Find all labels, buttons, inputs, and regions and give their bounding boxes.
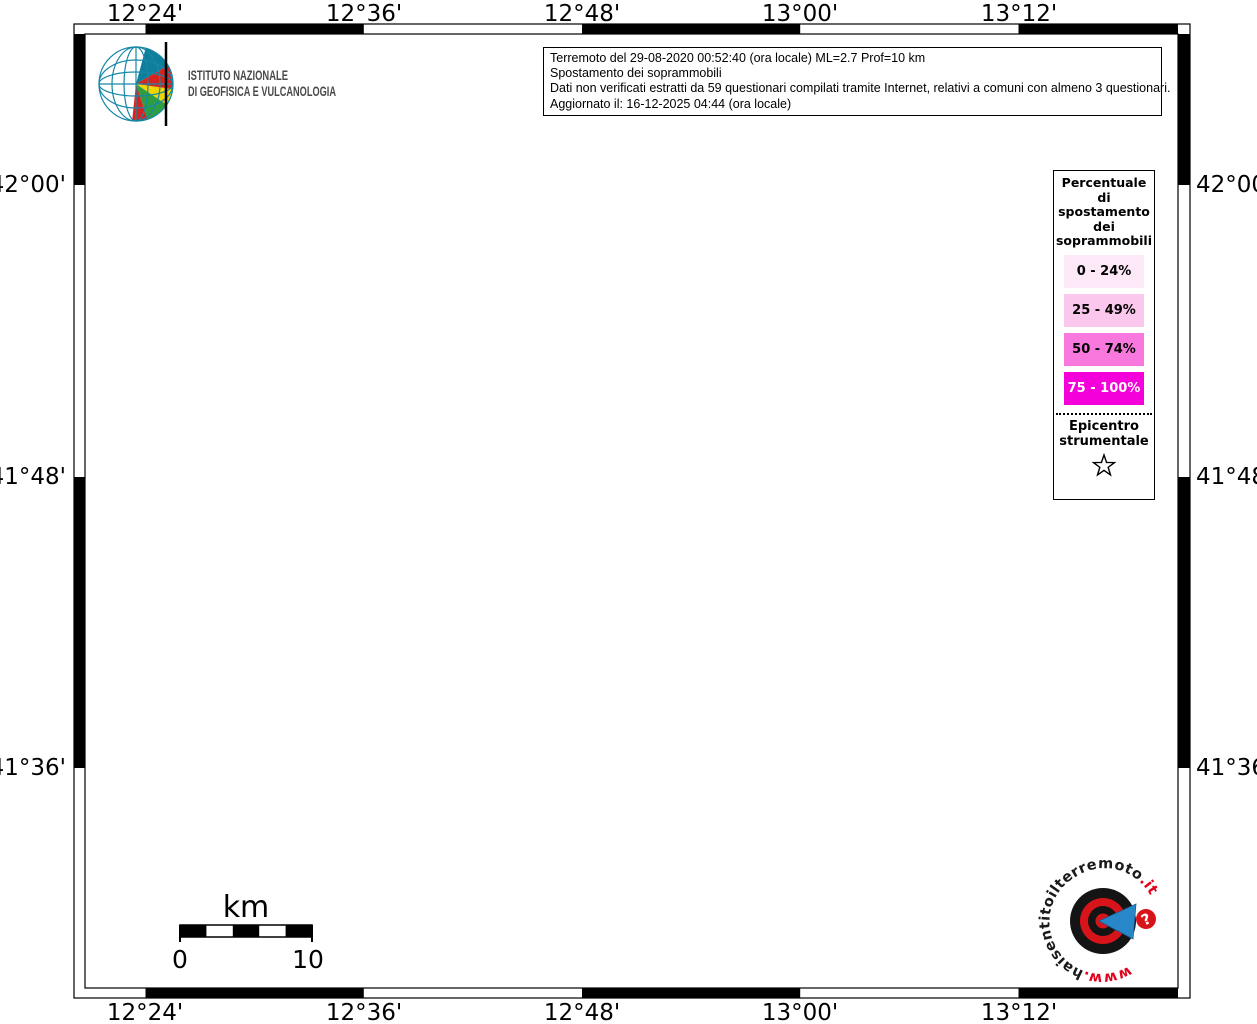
legend-star-icon: [1091, 453, 1117, 479]
legend-swatch-0-24: 0 - 24%: [1064, 255, 1144, 288]
lat-label-left-1: 41°48': [0, 464, 66, 490]
lon-label-bottom-4: 13°12': [981, 1000, 1057, 1024]
event-title-line: Terremoto del 29-08-2020 00:52:40 (ora l…: [550, 51, 1155, 66]
lat-label-left-0: 42°00': [0, 172, 66, 198]
lat-label-right-0: 42°00': [1196, 172, 1257, 198]
ingv-logo-line2: DI GEOFISICA E VULCANOLOGIA: [188, 84, 336, 99]
scalebar-unit: km: [223, 890, 270, 925]
legend-epicenter-label: Epicentro strumentale: [1054, 419, 1154, 450]
lon-label-top-3: 13°00': [762, 1, 838, 27]
event-source-line: Dati non verificati estratti da 59 quest…: [550, 81, 1155, 96]
lat-label-left-2: 41°36': [0, 755, 66, 781]
legend-swatch-25-49: 25 - 49%: [1064, 294, 1144, 327]
legend-swatch-75-100: 75 - 100%: [1064, 372, 1144, 405]
scalebar-end: 10: [292, 945, 324, 974]
lon-label-top-0: 12°24': [107, 1, 183, 27]
lon-label-bottom-1: 12°36': [326, 1000, 402, 1024]
lon-label-top-4: 13°12': [981, 1, 1057, 27]
event-info-box: Terremoto del 29-08-2020 00:52:40 (ora l…: [543, 47, 1162, 116]
scalebar-start: 0: [172, 945, 188, 974]
globe-grid-icon: [99, 47, 173, 121]
lat-label-right-2: 41°36': [1196, 755, 1257, 781]
legend-swatch-50-74: 50 - 74%: [1064, 333, 1144, 366]
legend-separator: [1056, 413, 1152, 415]
lon-label-bottom-0: 12°24': [107, 1000, 183, 1024]
event-effect-line: Spostamento dei soprammobili: [550, 66, 1155, 81]
lon-label-top-2: 12°48': [544, 1, 620, 27]
lon-label-top-1: 12°36': [326, 1, 402, 27]
legend-title: Percentuale di spostamento dei soprammob…: [1054, 176, 1154, 249]
lon-label-bottom-3: 13°00': [762, 1000, 838, 1024]
legend: Percentuale di spostamento dei soprammob…: [1053, 170, 1155, 500]
lat-label-right-1: 41°48': [1196, 464, 1257, 490]
map-canvas: km 0 10 ISTITUTO NAZIONALE DI GEOFISICA …: [0, 0, 1257, 1024]
lon-label-bottom-2: 12°48': [544, 1000, 620, 1024]
ingv-logo-line1: ISTITUTO NAZIONALE: [188, 68, 288, 83]
event-updated-line: Aggiornato il: 16-12-2025 04:44 (ora loc…: [550, 97, 1155, 112]
felt-map-figure: km 0 10 ISTITUTO NAZIONALE DI GEOFISICA …: [0, 0, 1257, 1024]
map-frame: [74, 24, 1190, 998]
